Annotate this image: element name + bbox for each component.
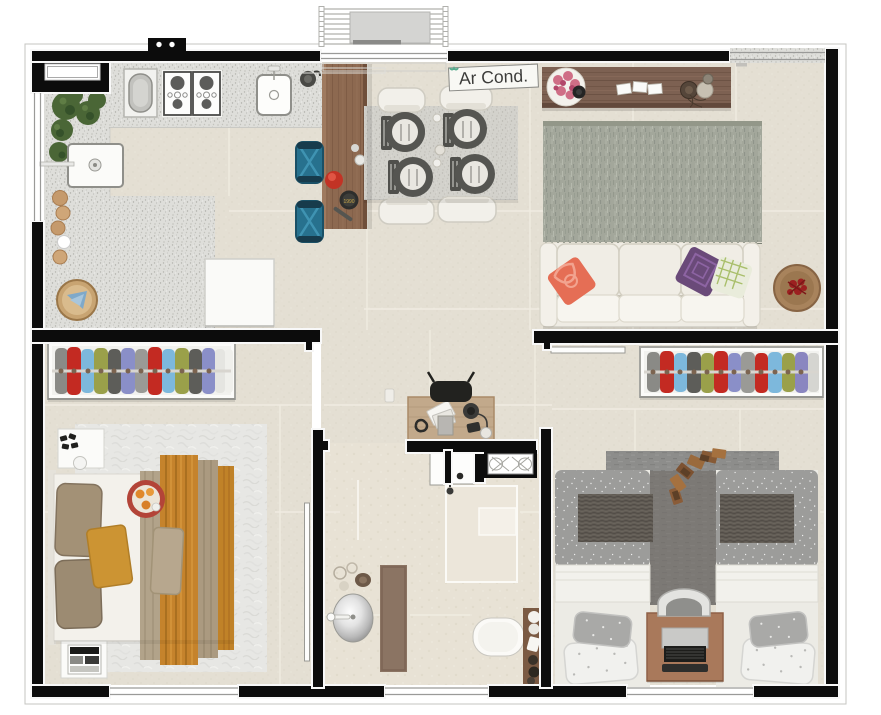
svg-text:1990: 1990 (343, 199, 354, 205)
svg-text:Ar Cond.: Ar Cond. (459, 65, 529, 88)
